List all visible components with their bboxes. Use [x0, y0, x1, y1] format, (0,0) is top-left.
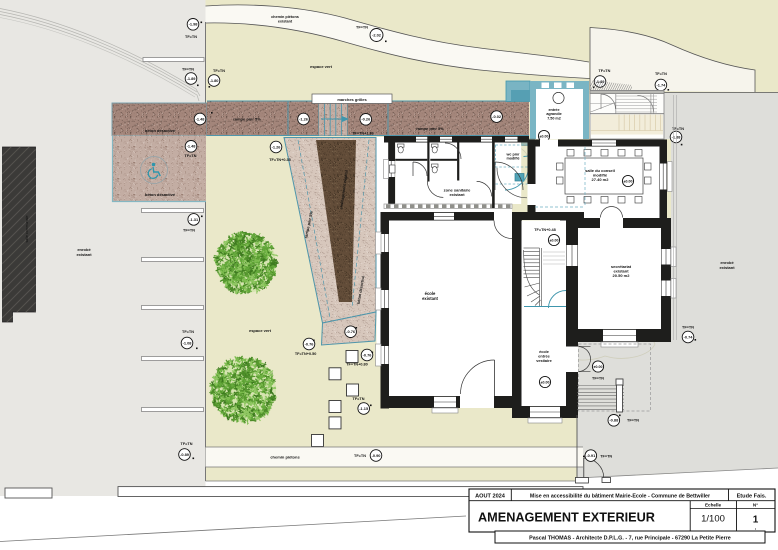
svg-text:-1.08: -1.08 [183, 340, 193, 345]
svg-text:AOUT 2024: AOUT 2024 [475, 494, 506, 500]
svg-text:TF=TN: TF=TN [181, 442, 193, 446]
svg-text:béton désactivé: béton désactivé [145, 192, 176, 197]
svg-text:-0.88: -0.88 [609, 418, 619, 423]
svg-text:existant: existant [719, 265, 735, 270]
svg-text:TF=TN: TF=TN [353, 397, 365, 401]
svg-text:TF=TN: TF=TN [183, 229, 195, 233]
svg-text:±0.00: ±0.00 [594, 365, 603, 369]
svg-text:TF=TN: TF=TN [672, 127, 684, 131]
svg-text:TF=TN+1.86: TF=TN+1.86 [352, 132, 374, 136]
svg-text:-1.26: -1.26 [272, 144, 282, 149]
svg-text:entrée: entrée [538, 355, 549, 359]
svg-text:Mise en accessibilité du bâtim: Mise en accessibilité du bâtiment Mairie… [530, 494, 710, 500]
svg-text:existant: existant [278, 20, 293, 24]
svg-text:-1.26: -1.26 [299, 116, 309, 121]
svg-text:AMENAGEMENT EXTERIEUR: AMENAGEMENT EXTERIEUR [478, 511, 655, 525]
svg-text:école: école [539, 350, 549, 354]
svg-text:-1.89: -1.89 [187, 76, 197, 81]
svg-text:TF=TN: TF=TN [627, 419, 639, 423]
svg-text:-2.02: -2.02 [372, 32, 382, 37]
svg-text:Etude Fais.: Etude Fais. [737, 494, 767, 500]
svg-text:TF=TN: TF=TN [354, 454, 366, 458]
svg-text:1/100: 1/100 [701, 514, 725, 525]
svg-text:-0.76: -0.76 [305, 341, 315, 346]
svg-text:TF=TN+0.50: TF=TN+0.50 [295, 352, 317, 356]
svg-text:±0.00: ±0.00 [624, 179, 633, 183]
svg-text:-1.48: -1.48 [196, 116, 206, 121]
svg-text:existant: existant [76, 252, 92, 257]
svg-text:modifié: modifié [506, 157, 519, 161]
svg-text:-0.76: -0.76 [346, 329, 356, 334]
svg-text:existant: existant [449, 192, 465, 197]
svg-text:TF=TN+0.35: TF=TN+0.35 [269, 158, 291, 162]
svg-text:-1.31: -1.31 [189, 217, 199, 222]
svg-text:Pascal THOMAS - Architecte: Pascal THOMAS - Architecte D.P.L.G. - 7,… [529, 536, 731, 542]
svg-text:-0.90: -0.90 [372, 453, 381, 458]
svg-text:TF=TN: TF=TN [600, 455, 612, 459]
svg-text:chemin piétons: chemin piétons [271, 15, 299, 19]
svg-text:rampe pmr 5%: rampe pmr 5% [416, 126, 444, 131]
svg-text:TF=TN: TF=TN [185, 35, 197, 39]
svg-text:TF=TN: TF=TN [182, 68, 194, 72]
svg-text:-0.76: -0.76 [363, 352, 373, 357]
svg-text:TF=TN: TF=TN [213, 69, 225, 73]
svg-text:Echelle: Echelle [705, 503, 722, 508]
svg-text:20.50 m2: 20.50 m2 [613, 273, 631, 278]
svg-text:-1.48: -1.48 [187, 144, 197, 149]
svg-text:1: 1 [753, 515, 759, 526]
svg-text:existant: existant [422, 296, 438, 301]
svg-text:-0.74: -0.74 [684, 334, 694, 339]
svg-text:espace vert: espace vert [249, 328, 272, 333]
svg-text:27.40 m2: 27.40 m2 [592, 177, 610, 182]
svg-text:TF=TN: TF=TN [655, 72, 667, 76]
svg-text:TF=TN: TF=TN [682, 326, 694, 330]
svg-text:TF=TN: TF=TN [185, 154, 197, 158]
svg-text:TF=TN+0.48: TF=TN+0.48 [534, 228, 556, 232]
svg-text:marches grilles: marches grilles [337, 97, 367, 102]
svg-text:±0.00: ±0.00 [540, 134, 549, 138]
svg-text:vestiaire: vestiaire [536, 359, 551, 363]
svg-text:rampe pmr 5%: rampe pmr 5% [233, 117, 261, 122]
svg-text:TF=TN: TF=TN [592, 377, 604, 381]
svg-text:-0.26: -0.26 [361, 117, 371, 122]
svg-text:TF=TN: TF=TN [182, 330, 194, 334]
svg-text:TF=TN: TF=TN [356, 26, 368, 30]
svg-text:-0.02: -0.02 [492, 114, 502, 119]
svg-text:TF=TN: TF=TN [598, 69, 610, 73]
svg-text:-0.91: -0.91 [586, 453, 596, 458]
svg-text:-1.74: -1.74 [656, 82, 666, 87]
svg-text:salle communale: salle communale [25, 216, 29, 243]
svg-text:-1.98: -1.98 [189, 22, 199, 27]
svg-text:±0.00: ±0.00 [541, 380, 550, 384]
svg-text:béton désactivé: béton désactivé [145, 128, 176, 133]
svg-text:±0.00: ±0.00 [550, 238, 559, 242]
svg-text:-1.15: -1.15 [359, 406, 369, 411]
svg-text:-1.80: -1.80 [210, 78, 219, 83]
svg-text:-0.89: -0.89 [180, 452, 190, 457]
svg-text:chemin piétons: chemin piétons [270, 455, 300, 460]
svg-text:7.50 m2: 7.50 m2 [547, 116, 561, 120]
svg-text:TF=TN+0.80: TF=TN+0.80 [346, 363, 368, 367]
svg-text:espace vert: espace vert [310, 64, 333, 69]
svg-text:N°: N° [753, 503, 758, 508]
